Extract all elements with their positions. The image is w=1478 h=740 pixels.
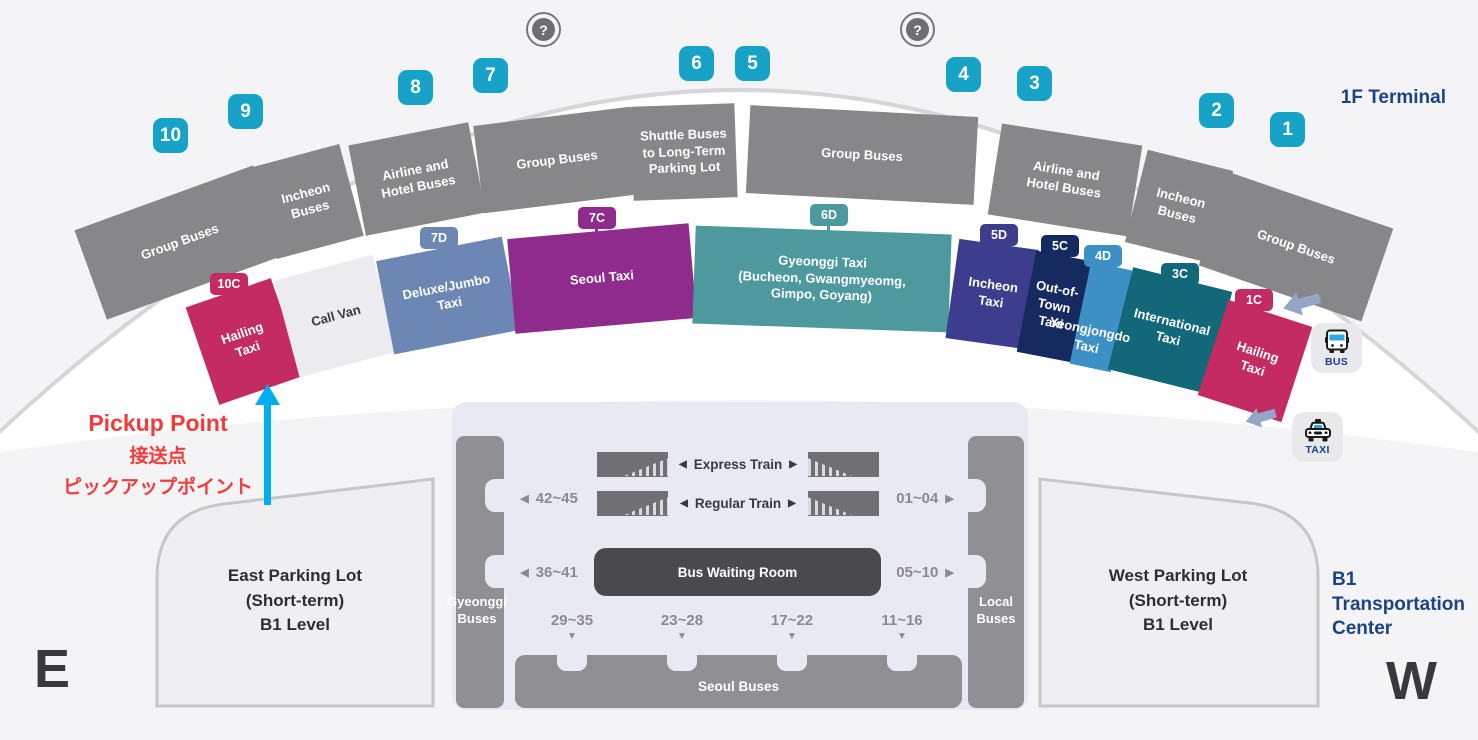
door-badge-3: 3 [1017, 66, 1052, 101]
door-number: 2 [1211, 100, 1222, 122]
zone-airline-hotel-buses-east: Airline and Hotel Buses [988, 123, 1143, 236]
train-name: Express Train [694, 457, 783, 472]
zone-label: Gyeonggi Taxi (Bucheon, Gwangmyeomg, Gim… [737, 251, 906, 307]
bus-waiting-room: Bus Waiting Room [594, 548, 881, 596]
compass-east: E [34, 638, 70, 700]
pickup-point-annotation: Pickup Point 接送点 ピックアップポイント [44, 410, 272, 499]
zone-label: Call Van [309, 301, 362, 330]
right-arrow-icon: ▶ [789, 459, 797, 470]
zone-label: Group Buses [821, 144, 903, 165]
taxi-stand-icon-box: TAXI [1292, 412, 1343, 462]
pickup-point-japanese: ピックアップポイント [44, 472, 272, 499]
door-badge-9: 9 [228, 94, 263, 129]
gate-badge-7d: 7D [420, 227, 458, 249]
platform-range-value: 17~22 [771, 612, 813, 629]
down-arrow-icon: ▼ [642, 631, 722, 642]
question-mark-icon: ? [906, 18, 929, 41]
door-badge-2: 2 [1199, 93, 1234, 128]
bus-waiting-room-label: Bus Waiting Room [678, 565, 798, 580]
zone-label: Group Buses [515, 147, 598, 174]
parking-label-line: West Parking Lot [1078, 564, 1278, 589]
gate-badge-label: 1C [1246, 293, 1262, 307]
down-arrow-icon: ▼ [862, 631, 942, 642]
seoul-buses-label: Seoul Buses [698, 679, 779, 694]
platform-range-value: 29~35 [551, 612, 593, 629]
down-arrow-icon: ▼ [752, 631, 832, 642]
platform-11-16: 11~16▼ [862, 613, 942, 642]
zone-label: Incheon Buses [1141, 182, 1217, 232]
zone-label: Seoul Taxi [569, 267, 634, 289]
transportation-center-building: Gyeonggi Buses Local Buses ◀ Express Tra… [452, 402, 1028, 710]
taxi-icon [1304, 419, 1332, 443]
zone-airline-hotel-buses-west: Airline and Hotel Buses [348, 122, 485, 236]
down-arrow-icon: ▼ [532, 631, 612, 642]
gate-range-value: 36~41 [536, 564, 578, 581]
bar-notch [557, 655, 587, 671]
bus-stop-icon-box: BUS [1311, 323, 1362, 373]
terminal-map: Group Buses Incheon Buses Airline and Ho… [0, 0, 1478, 740]
zone-seoul-taxi: Seoul Taxi [507, 223, 697, 334]
compass-west: W [1386, 650, 1437, 712]
parking-label-line: B1 Level [1078, 613, 1278, 638]
platform-29-35: 29~35▼ [532, 613, 612, 642]
gate-badge-label: 5D [991, 228, 1007, 242]
platform-23-28: 23~28▼ [642, 613, 722, 642]
train-name: Regular Train [695, 496, 781, 511]
escalator-icon [597, 452, 668, 477]
door-number: 10 [160, 125, 181, 147]
pickup-point-title: Pickup Point [44, 410, 272, 437]
zone-label: Shuttle Buses to Long-Term Parking Lot [632, 125, 736, 179]
east-parking-label: East Parking Lot (Short-term) B1 Level [195, 564, 395, 638]
gate-badge-10c: 10C [210, 273, 248, 295]
zone-group-buses-center-east: Group Buses [746, 105, 978, 205]
zone-label: Group Buses [1255, 226, 1338, 269]
zone-label: Airline and Hotel Buses [365, 153, 470, 205]
taxi-icon-label: TAXI [1305, 444, 1329, 456]
escalator-icon [808, 491, 879, 516]
parking-label-line: B1 Level [195, 613, 395, 638]
escalator-steps [597, 491, 668, 516]
gyeonggi-buses-label: Gyeonggi Buses [441, 594, 513, 628]
door-badge-5: 5 [735, 46, 770, 81]
gate-badge-1c: 1C [1235, 289, 1273, 311]
regular-train-label: ◀ Regular Train ▶ [668, 491, 808, 516]
zone-label: Incheon Taxi [955, 272, 1029, 315]
zone-group-buses-center-west: Group Buses [473, 107, 641, 214]
zone-label: Incheon Buses [270, 176, 346, 227]
local-buses-label: Local Buses [964, 594, 1028, 628]
gate-badge-label: 5C [1052, 239, 1068, 253]
escalator-steps [808, 491, 879, 516]
door-number: 3 [1029, 73, 1040, 95]
zone-label: Hailing Taxi [211, 316, 279, 367]
gate-range-value: 05~10 [896, 564, 938, 581]
door-badge-6: 6 [679, 46, 714, 81]
bus-icon-label: BUS [1325, 356, 1348, 368]
zone-label: Deluxe/Jumbo Taxi [391, 268, 505, 322]
escalator-steps [808, 452, 879, 477]
help-icon: ? [526, 12, 561, 47]
left-arrow-icon: ◀ [680, 498, 688, 509]
bar-notch [887, 655, 917, 671]
gate-badge-label: 7C [589, 211, 605, 225]
door-number: 6 [691, 53, 702, 75]
zone-gyeonggi-taxi: Gyeonggi Taxi (Bucheon, Gwangmyeomg, Gim… [692, 226, 951, 333]
door-badge-4: 4 [946, 57, 981, 92]
platform-range-value: 23~28 [661, 612, 703, 629]
left-arrow-icon: ◀ [520, 492, 528, 505]
express-train-label: ◀ Express Train ▶ [668, 452, 808, 477]
zone-shuttle-buses-longterm: Shuttle Buses to Long-Term Parking Lot [630, 103, 737, 201]
gate-range-value: 42~45 [536, 490, 578, 507]
platform-range-value: 11~16 [881, 612, 922, 629]
help-icon: ? [900, 12, 935, 47]
gate-badge-4d: 4D [1084, 245, 1122, 267]
bar-notch [777, 655, 807, 671]
terminal-title: 1F Terminal [1316, 86, 1446, 111]
door-number: 9 [240, 101, 251, 123]
gate-badge-5d: 5D [980, 224, 1018, 246]
door-badge-7: 7 [473, 58, 508, 93]
bar-notch [667, 655, 697, 671]
door-number: 1 [1282, 119, 1293, 141]
west-parking-label: West Parking Lot (Short-term) B1 Level [1078, 564, 1278, 638]
bus-icon [1324, 329, 1350, 355]
gate-badge-7c: 7C [578, 207, 616, 229]
right-arrow-icon: ▶ [945, 492, 953, 505]
question-mark-icon: ? [532, 18, 555, 41]
right-arrow-icon: ▶ [945, 566, 953, 579]
door-badge-1: 1 [1270, 112, 1305, 147]
gate-range-01-04: 01~04 ▶ [876, 486, 974, 511]
gate-badge-label: 10C [218, 277, 241, 291]
zone-deluxe-jumbo-taxi: Deluxe/Jumbo Taxi [376, 237, 520, 355]
door-number: 4 [958, 64, 969, 86]
gate-range-value: 01~04 [896, 490, 938, 507]
door-number: 7 [485, 65, 496, 87]
zone-label: Airline and Hotel Buses [1013, 155, 1117, 204]
door-badge-10: 10 [153, 118, 188, 153]
door-number: 8 [410, 77, 421, 99]
platform-17-22: 17~22▼ [752, 613, 832, 642]
transportation-center-title: B1 Transportation Center [1332, 568, 1478, 642]
gate-range-05-10: 05~10 ▶ [876, 560, 974, 585]
gate-badge-label: 4D [1095, 249, 1111, 263]
gate-range-36-41: ◀ 36~41 [500, 560, 598, 585]
gate-badge-label: 3C [1172, 267, 1188, 281]
parking-label-line: East Parking Lot [195, 564, 395, 589]
escalator-icon [597, 491, 668, 516]
gate-badge-6d: 6D [810, 204, 848, 226]
gate-range-42-45: ◀ 42~45 [500, 486, 598, 511]
gate-badge-3c: 3C [1161, 263, 1199, 285]
parking-label-line: (Short-term) [195, 589, 395, 614]
gate-badge-label: 6D [821, 208, 837, 222]
zone-label: Group Buses [139, 221, 221, 265]
door-number: 5 [747, 53, 758, 75]
gate-badge-label: 7D [431, 231, 447, 245]
escalator-icon [808, 452, 879, 477]
left-arrow-icon: ◀ [520, 566, 528, 579]
parking-label-line: (Short-term) [1078, 589, 1278, 614]
left-arrow-icon: ◀ [679, 459, 687, 470]
escalator-steps [597, 452, 668, 477]
pickup-point-chinese: 接送点 [44, 441, 272, 468]
gate-badge-5c: 5C [1041, 235, 1079, 257]
right-arrow-icon: ▶ [788, 498, 796, 509]
zone-label: Hailing Taxi [1224, 336, 1287, 385]
door-badge-8: 8 [398, 70, 433, 105]
